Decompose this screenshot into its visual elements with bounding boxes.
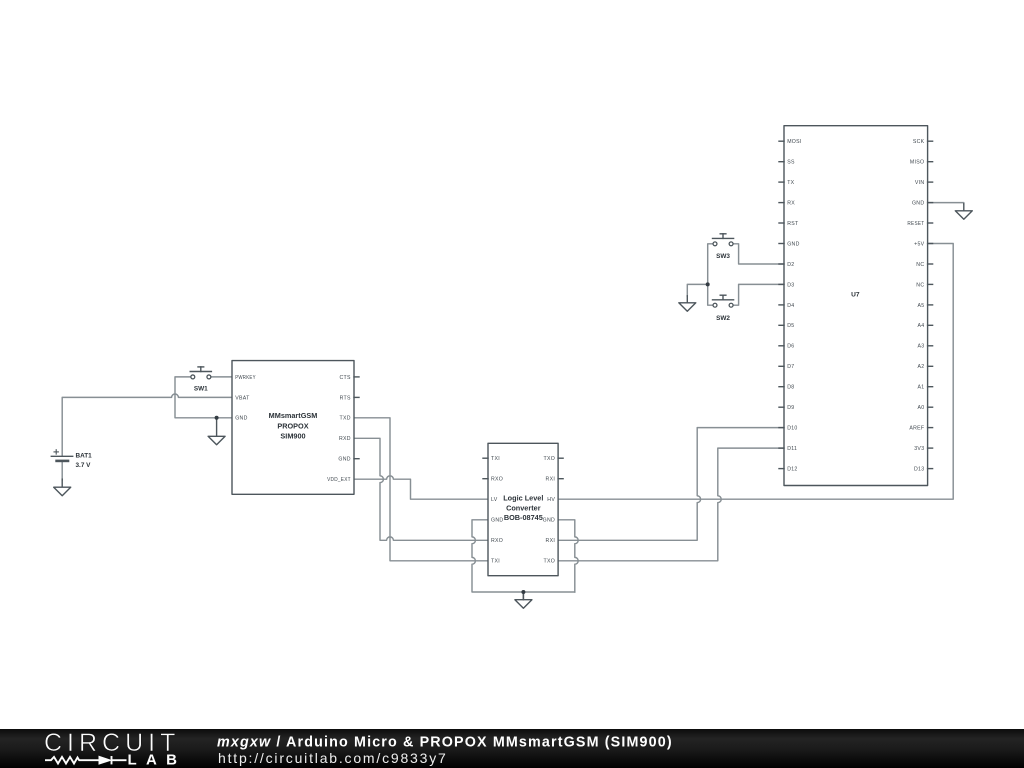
svg-text:A2: A2: [917, 364, 924, 370]
svg-text:RXI: RXI: [546, 477, 556, 483]
svg-text:D7: D7: [787, 364, 794, 370]
svg-text:A5: A5: [917, 303, 924, 309]
svg-text:RX: RX: [787, 201, 795, 207]
svg-text:TX: TX: [787, 180, 794, 186]
svg-text:3.7 V: 3.7 V: [76, 462, 92, 469]
svg-text:SW1: SW1: [194, 385, 208, 392]
svg-text:RXO: RXO: [491, 538, 503, 544]
svg-text:BAT1: BAT1: [76, 453, 93, 460]
svg-text:D5: D5: [787, 323, 794, 329]
svg-text:GND: GND: [235, 416, 247, 422]
svg-text:TXO: TXO: [544, 559, 556, 565]
svg-text:RST: RST: [787, 221, 799, 227]
svg-text:D6: D6: [787, 344, 794, 350]
svg-text:Logic Level: Logic Level: [503, 493, 543, 502]
svg-text:GND: GND: [912, 201, 924, 207]
svg-text:RESET: RESET: [907, 221, 924, 227]
svg-text:MISO: MISO: [910, 160, 924, 166]
svg-text:RTS: RTS: [340, 395, 351, 401]
svg-text:D9: D9: [787, 405, 794, 411]
svg-text:VIN: VIN: [915, 180, 925, 186]
svg-text:D11: D11: [787, 446, 797, 452]
svg-text:Converter: Converter: [506, 503, 541, 512]
svg-text:GND: GND: [338, 457, 350, 463]
svg-text:LAB: LAB: [128, 752, 187, 768]
svg-text:D12: D12: [787, 467, 797, 473]
svg-text:A0: A0: [917, 405, 924, 411]
svg-text:LV: LV: [491, 497, 498, 503]
svg-text:PROPOX: PROPOX: [277, 422, 308, 431]
svg-text:TXI: TXI: [491, 559, 500, 565]
svg-text:MMsmartGSM: MMsmartGSM: [269, 411, 318, 420]
svg-text:RXO: RXO: [491, 477, 503, 483]
svg-text:D4: D4: [787, 303, 794, 309]
svg-text:NC: NC: [916, 282, 924, 288]
svg-text:TXI: TXI: [491, 456, 500, 462]
svg-text:A3: A3: [917, 344, 924, 350]
svg-text:VDD_EXT: VDD_EXT: [327, 477, 351, 483]
svg-text:RXI: RXI: [546, 538, 556, 544]
svg-text:MOSI: MOSI: [787, 139, 801, 145]
svg-text:CTS: CTS: [340, 375, 352, 381]
svg-text:GND: GND: [543, 518, 555, 524]
svg-text:SW3: SW3: [716, 253, 730, 260]
svg-text:VBAT: VBAT: [235, 395, 250, 401]
svg-text:NC: NC: [916, 262, 924, 268]
svg-text:RXD: RXD: [339, 436, 351, 442]
svg-text:A1: A1: [917, 385, 924, 391]
svg-text:BOB-08745: BOB-08745: [504, 513, 543, 522]
svg-text:+5V: +5V: [914, 241, 925, 247]
svg-text:D3: D3: [787, 282, 794, 288]
svg-text:SW2: SW2: [716, 315, 730, 322]
svg-text:TXO: TXO: [544, 456, 556, 462]
svg-text:TXD: TXD: [340, 416, 351, 422]
svg-text:HV: HV: [547, 497, 555, 503]
svg-text:U7: U7: [851, 291, 860, 298]
svg-text:AREF: AREF: [909, 426, 924, 432]
svg-text:A4: A4: [917, 323, 924, 329]
svg-text:3V3: 3V3: [914, 446, 924, 452]
svg-text:GND: GND: [491, 518, 503, 524]
svg-text:PWRKEY: PWRKEY: [235, 375, 256, 381]
svg-text:D10: D10: [787, 426, 797, 432]
svg-text:mxgxw / Arduino Micro & PROPOX: mxgxw / Arduino Micro & PROPOX MMsmartGS…: [217, 735, 673, 751]
svg-text:D2: D2: [787, 262, 794, 268]
svg-text:http://circuitlab.com/c9833y7: http://circuitlab.com/c9833y7: [218, 750, 448, 766]
svg-text:D13: D13: [914, 467, 924, 473]
svg-text:D8: D8: [787, 385, 794, 391]
svg-text:SIM900: SIM900: [280, 432, 305, 441]
svg-text:SS: SS: [787, 160, 795, 166]
svg-text:GND: GND: [787, 241, 799, 247]
svg-text:SCK: SCK: [913, 139, 925, 145]
